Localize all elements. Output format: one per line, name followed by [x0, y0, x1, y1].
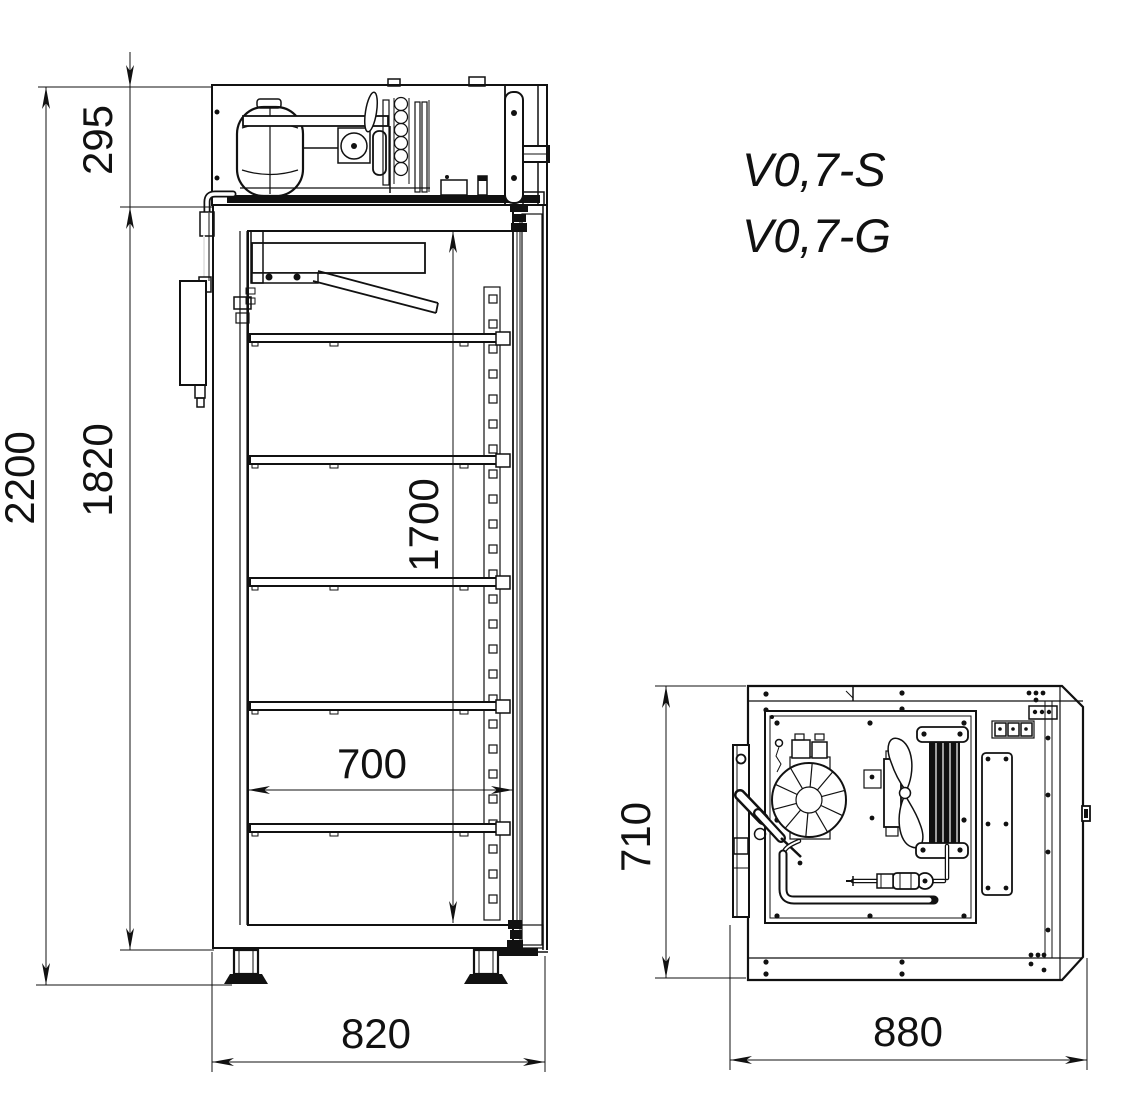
shelf [250, 576, 510, 590]
foot-left [224, 950, 268, 984]
dim-overall-depth: 820 [341, 1010, 411, 1057]
drawing-svg: 2200 1820 295 1700 700 820 V0,7-S V0,7-G [0, 0, 1133, 1101]
shelf [250, 332, 510, 346]
insulated-body [213, 205, 513, 948]
model-label-1: V0,7-S [742, 143, 886, 196]
compressor-side [237, 99, 303, 196]
dim-body-height: 1820 [74, 423, 121, 516]
dim-interior-height: 1700 [400, 478, 447, 571]
model-label-2: V0,7-G [742, 209, 891, 262]
filter-drier [893, 873, 919, 889]
hinge-panel [505, 85, 549, 205]
shelf [250, 822, 510, 836]
door-gasket-top [510, 205, 528, 232]
evaporator [234, 231, 438, 323]
dim-machine-compartment-height: 295 [74, 105, 121, 175]
hinge-bracket-top-view [733, 745, 749, 917]
drain-tube [180, 281, 206, 385]
dim-overall-height: 2200 [0, 431, 43, 524]
suction-pipe [180, 194, 233, 407]
dim-top-depth: 710 [612, 802, 659, 872]
terminal-block [992, 721, 1034, 738]
shelf [250, 454, 510, 468]
technical-drawing: 2200 1820 295 1700 700 820 V0,7-S V0,7-G [0, 0, 1133, 1101]
interior [234, 231, 510, 920]
shelf [250, 700, 510, 714]
top-view: 710 880 [612, 686, 1090, 1070]
dim-top-width: 880 [873, 1008, 943, 1055]
compartment-base-plate [227, 195, 540, 203]
dim-interior-depth: 700 [337, 740, 407, 787]
edge-latch [1082, 806, 1090, 821]
model-labels: V0,7-S V0,7-G [742, 143, 891, 262]
drier-side [373, 131, 386, 175]
side-section-view: 2200 1820 295 1700 700 820 [0, 52, 549, 1072]
